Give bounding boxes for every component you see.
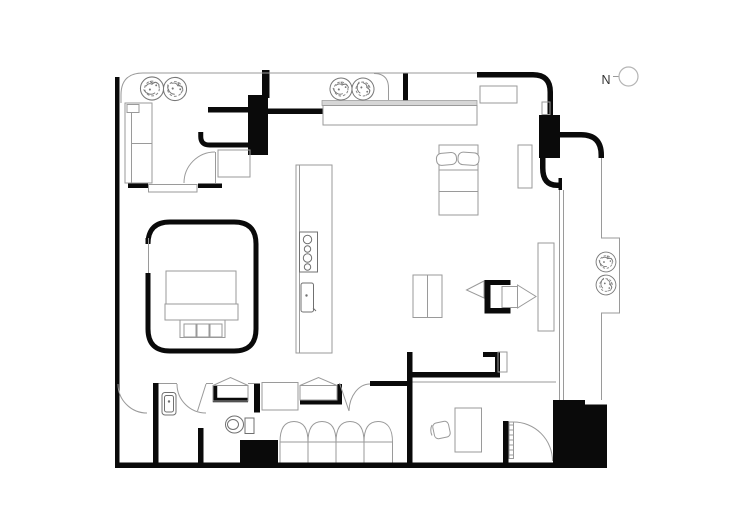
desk-chair xyxy=(432,421,451,440)
wall-hook-curve xyxy=(201,132,250,145)
study-wall-horiz xyxy=(412,372,498,378)
plant-icon xyxy=(593,249,619,275)
sink-drain xyxy=(305,294,307,296)
burner xyxy=(303,254,311,262)
bench-cushion xyxy=(127,105,139,113)
floor-plan-drawing: N xyxy=(0,0,750,530)
plant-icon xyxy=(328,76,355,103)
north-label: N xyxy=(602,73,611,87)
wall-stub-top-middle xyxy=(403,73,408,101)
armchair-cushion xyxy=(502,287,518,308)
plant-icon xyxy=(159,73,192,106)
bedroom-right xyxy=(436,145,532,215)
bath-vanity-mass xyxy=(240,440,278,463)
plant-icon xyxy=(349,75,377,103)
column-central xyxy=(248,95,268,155)
bath-wall-vert-a xyxy=(153,383,159,463)
window-cap xyxy=(559,178,563,190)
window-recess xyxy=(149,185,198,193)
living-area xyxy=(413,243,619,331)
bath-wall-vert-b xyxy=(254,384,260,413)
wall-bottom xyxy=(115,463,607,469)
burner xyxy=(304,246,310,252)
wall-right-curve xyxy=(560,135,601,158)
basin-door-leaf xyxy=(198,384,207,411)
entry-door xyxy=(509,422,553,461)
exterior-and-interior-walls xyxy=(115,70,607,468)
pod-bed-band xyxy=(165,304,238,320)
pod-shell xyxy=(148,222,256,351)
armchair-frame-bottom xyxy=(485,308,511,314)
counter-back-band xyxy=(322,101,477,106)
floor-plan-page: N xyxy=(0,0,750,530)
island-sink xyxy=(301,283,314,312)
column-top-right xyxy=(539,115,560,158)
bench-edge-a xyxy=(215,385,248,400)
counter-end-curve xyxy=(374,74,389,101)
armchair-wing-left xyxy=(467,281,485,298)
burner xyxy=(304,264,310,270)
entry-room xyxy=(125,73,250,192)
bench-back-line xyxy=(132,112,153,183)
service-core-mass xyxy=(553,400,607,468)
pod-bed-cushion xyxy=(197,324,209,337)
folded-bench-b xyxy=(300,378,337,401)
bath-wall-vert-c xyxy=(198,428,204,463)
burner xyxy=(303,235,311,243)
sleeping-pod xyxy=(148,222,256,351)
armchair-wing-right xyxy=(518,285,537,308)
bench-edge-b xyxy=(300,400,342,405)
desk xyxy=(455,408,482,452)
north-indicator: N xyxy=(602,67,639,87)
scalloped-curtain xyxy=(280,422,393,463)
toilet-cistern xyxy=(245,418,254,434)
pod-bed-head xyxy=(180,320,225,338)
folded-bench-a xyxy=(213,378,248,402)
plant-icon xyxy=(140,77,163,100)
bed-sheet-lines xyxy=(439,170,478,192)
bedside-unit xyxy=(518,145,532,188)
entry-wall-seg-b xyxy=(198,184,222,189)
entry-cabinet xyxy=(218,150,250,177)
wall-top-right-curve xyxy=(477,75,550,115)
door-threshold-hatch xyxy=(509,425,514,455)
entry-door-swing xyxy=(184,152,215,183)
pod-bed-mattress xyxy=(166,271,236,304)
kitchen xyxy=(296,74,550,354)
armchair xyxy=(467,280,537,314)
pod-bed-cushion xyxy=(184,324,196,337)
wall-left xyxy=(115,77,120,468)
north-circle xyxy=(619,67,638,86)
basin-drain xyxy=(168,400,170,402)
wall-bar-right-of-column xyxy=(268,109,323,115)
study-room xyxy=(431,352,553,461)
kitchen-counter xyxy=(323,106,477,126)
shower-tray xyxy=(262,383,298,411)
shower-door-swing xyxy=(349,384,370,411)
pod-bed-cushion xyxy=(210,324,222,337)
toilet-bowl xyxy=(226,416,244,433)
desk-chair-back xyxy=(431,425,432,436)
kitchen-island xyxy=(296,165,332,353)
shower-top-wall xyxy=(370,381,410,386)
pillow xyxy=(458,152,480,166)
main-door-swing xyxy=(514,422,553,461)
wall-bar-left-of-column xyxy=(208,107,248,113)
entry-wall-seg-a xyxy=(128,184,148,189)
wc-door-swing xyxy=(118,384,147,413)
armchair-frame-top xyxy=(485,280,511,285)
wardrobe xyxy=(538,243,554,331)
pillow xyxy=(436,152,457,166)
niche-cabinet xyxy=(480,86,517,103)
door-jamb-wall xyxy=(503,421,509,463)
wall-under-column-curve xyxy=(543,158,560,185)
column-stub-top xyxy=(262,70,270,98)
plant-icon xyxy=(595,274,618,297)
study-wall-vert xyxy=(407,352,413,463)
